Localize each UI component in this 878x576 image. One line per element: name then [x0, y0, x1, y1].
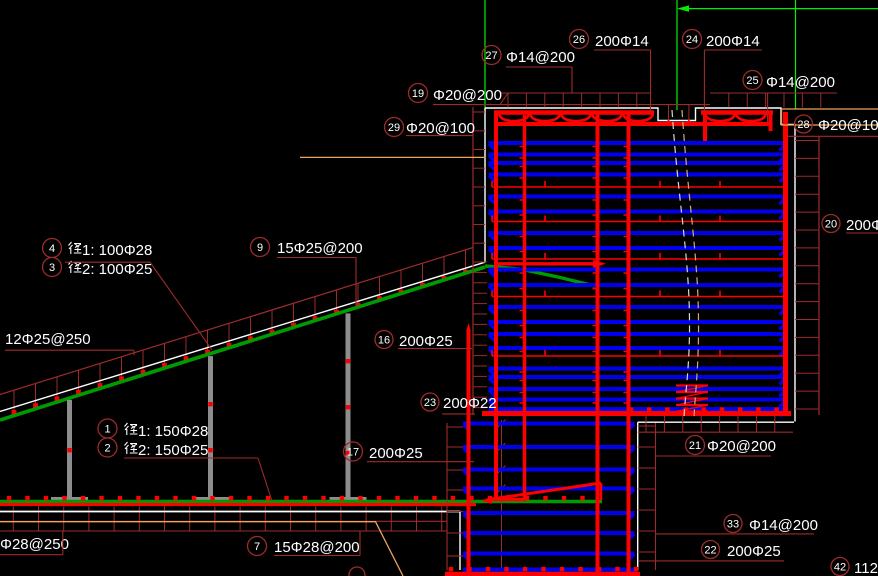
- svg-text:1: 150Φ28: 1: 150Φ28: [138, 423, 208, 440]
- svg-text:4: 4: [49, 243, 55, 255]
- svg-text:15Φ28@200: 15Φ28@200: [274, 539, 360, 556]
- svg-text:20: 20: [825, 219, 837, 231]
- svg-text:9: 9: [257, 242, 263, 254]
- svg-text:19: 19: [412, 88, 424, 100]
- svg-text:33: 33: [727, 519, 739, 531]
- svg-text:24: 24: [686, 34, 698, 46]
- svg-text:200Φ25: 200Φ25: [399, 333, 453, 350]
- svg-text:16: 16: [378, 335, 390, 347]
- svg-text:2: 150Φ25: 2: 150Φ25: [138, 442, 208, 459]
- svg-text:7: 7: [254, 541, 260, 553]
- svg-text:Φ20@100: Φ20@100: [818, 117, 878, 134]
- svg-text:1: 1: [104, 424, 110, 436]
- svg-text:12Φ25@250: 12Φ25@250: [5, 331, 91, 348]
- svg-text:Φ20@100: Φ20@100: [406, 120, 475, 137]
- svg-text:200Φ14: 200Φ14: [706, 33, 760, 50]
- svg-text:21: 21: [689, 440, 701, 452]
- svg-text:200Φ14: 200Φ14: [595, 33, 649, 50]
- svg-text:3: 3: [49, 262, 55, 274]
- svg-text:28: 28: [797, 119, 809, 131]
- svg-text:17: 17: [347, 447, 359, 459]
- svg-text:200Φ25: 200Φ25: [727, 543, 781, 560]
- svg-text:200Φ25: 200Φ25: [369, 445, 423, 462]
- svg-text:42: 42: [834, 562, 846, 574]
- svg-text:15Φ25@200: 15Φ25@200: [277, 240, 363, 257]
- svg-text:26: 26: [573, 34, 585, 46]
- svg-text:Φ20@200: Φ20@200: [433, 87, 502, 104]
- svg-text:23: 23: [424, 397, 436, 409]
- svg-text:200Φ22: 200Φ22: [443, 395, 497, 412]
- svg-text:1: 100Φ28: 1: 100Φ28: [82, 242, 152, 259]
- svg-text:2: 100Φ25: 2: 100Φ25: [82, 261, 152, 278]
- svg-text:Φ28@250: Φ28@250: [0, 536, 69, 553]
- svg-text:29: 29: [388, 122, 400, 134]
- svg-text:200Φ25: 200Φ25: [846, 217, 878, 234]
- svg-text:27: 27: [485, 50, 497, 62]
- svg-text:Φ14@200: Φ14@200: [766, 74, 835, 91]
- svg-text:Φ14@200: Φ14@200: [506, 49, 575, 66]
- svg-text:Φ20@200: Φ20@200: [707, 438, 776, 455]
- svg-text:2: 2: [104, 443, 110, 455]
- svg-text:25: 25: [746, 75, 758, 87]
- svg-text:112: 112: [854, 560, 878, 576]
- svg-text:Φ14@200: Φ14@200: [749, 517, 818, 534]
- svg-text:22: 22: [704, 545, 716, 557]
